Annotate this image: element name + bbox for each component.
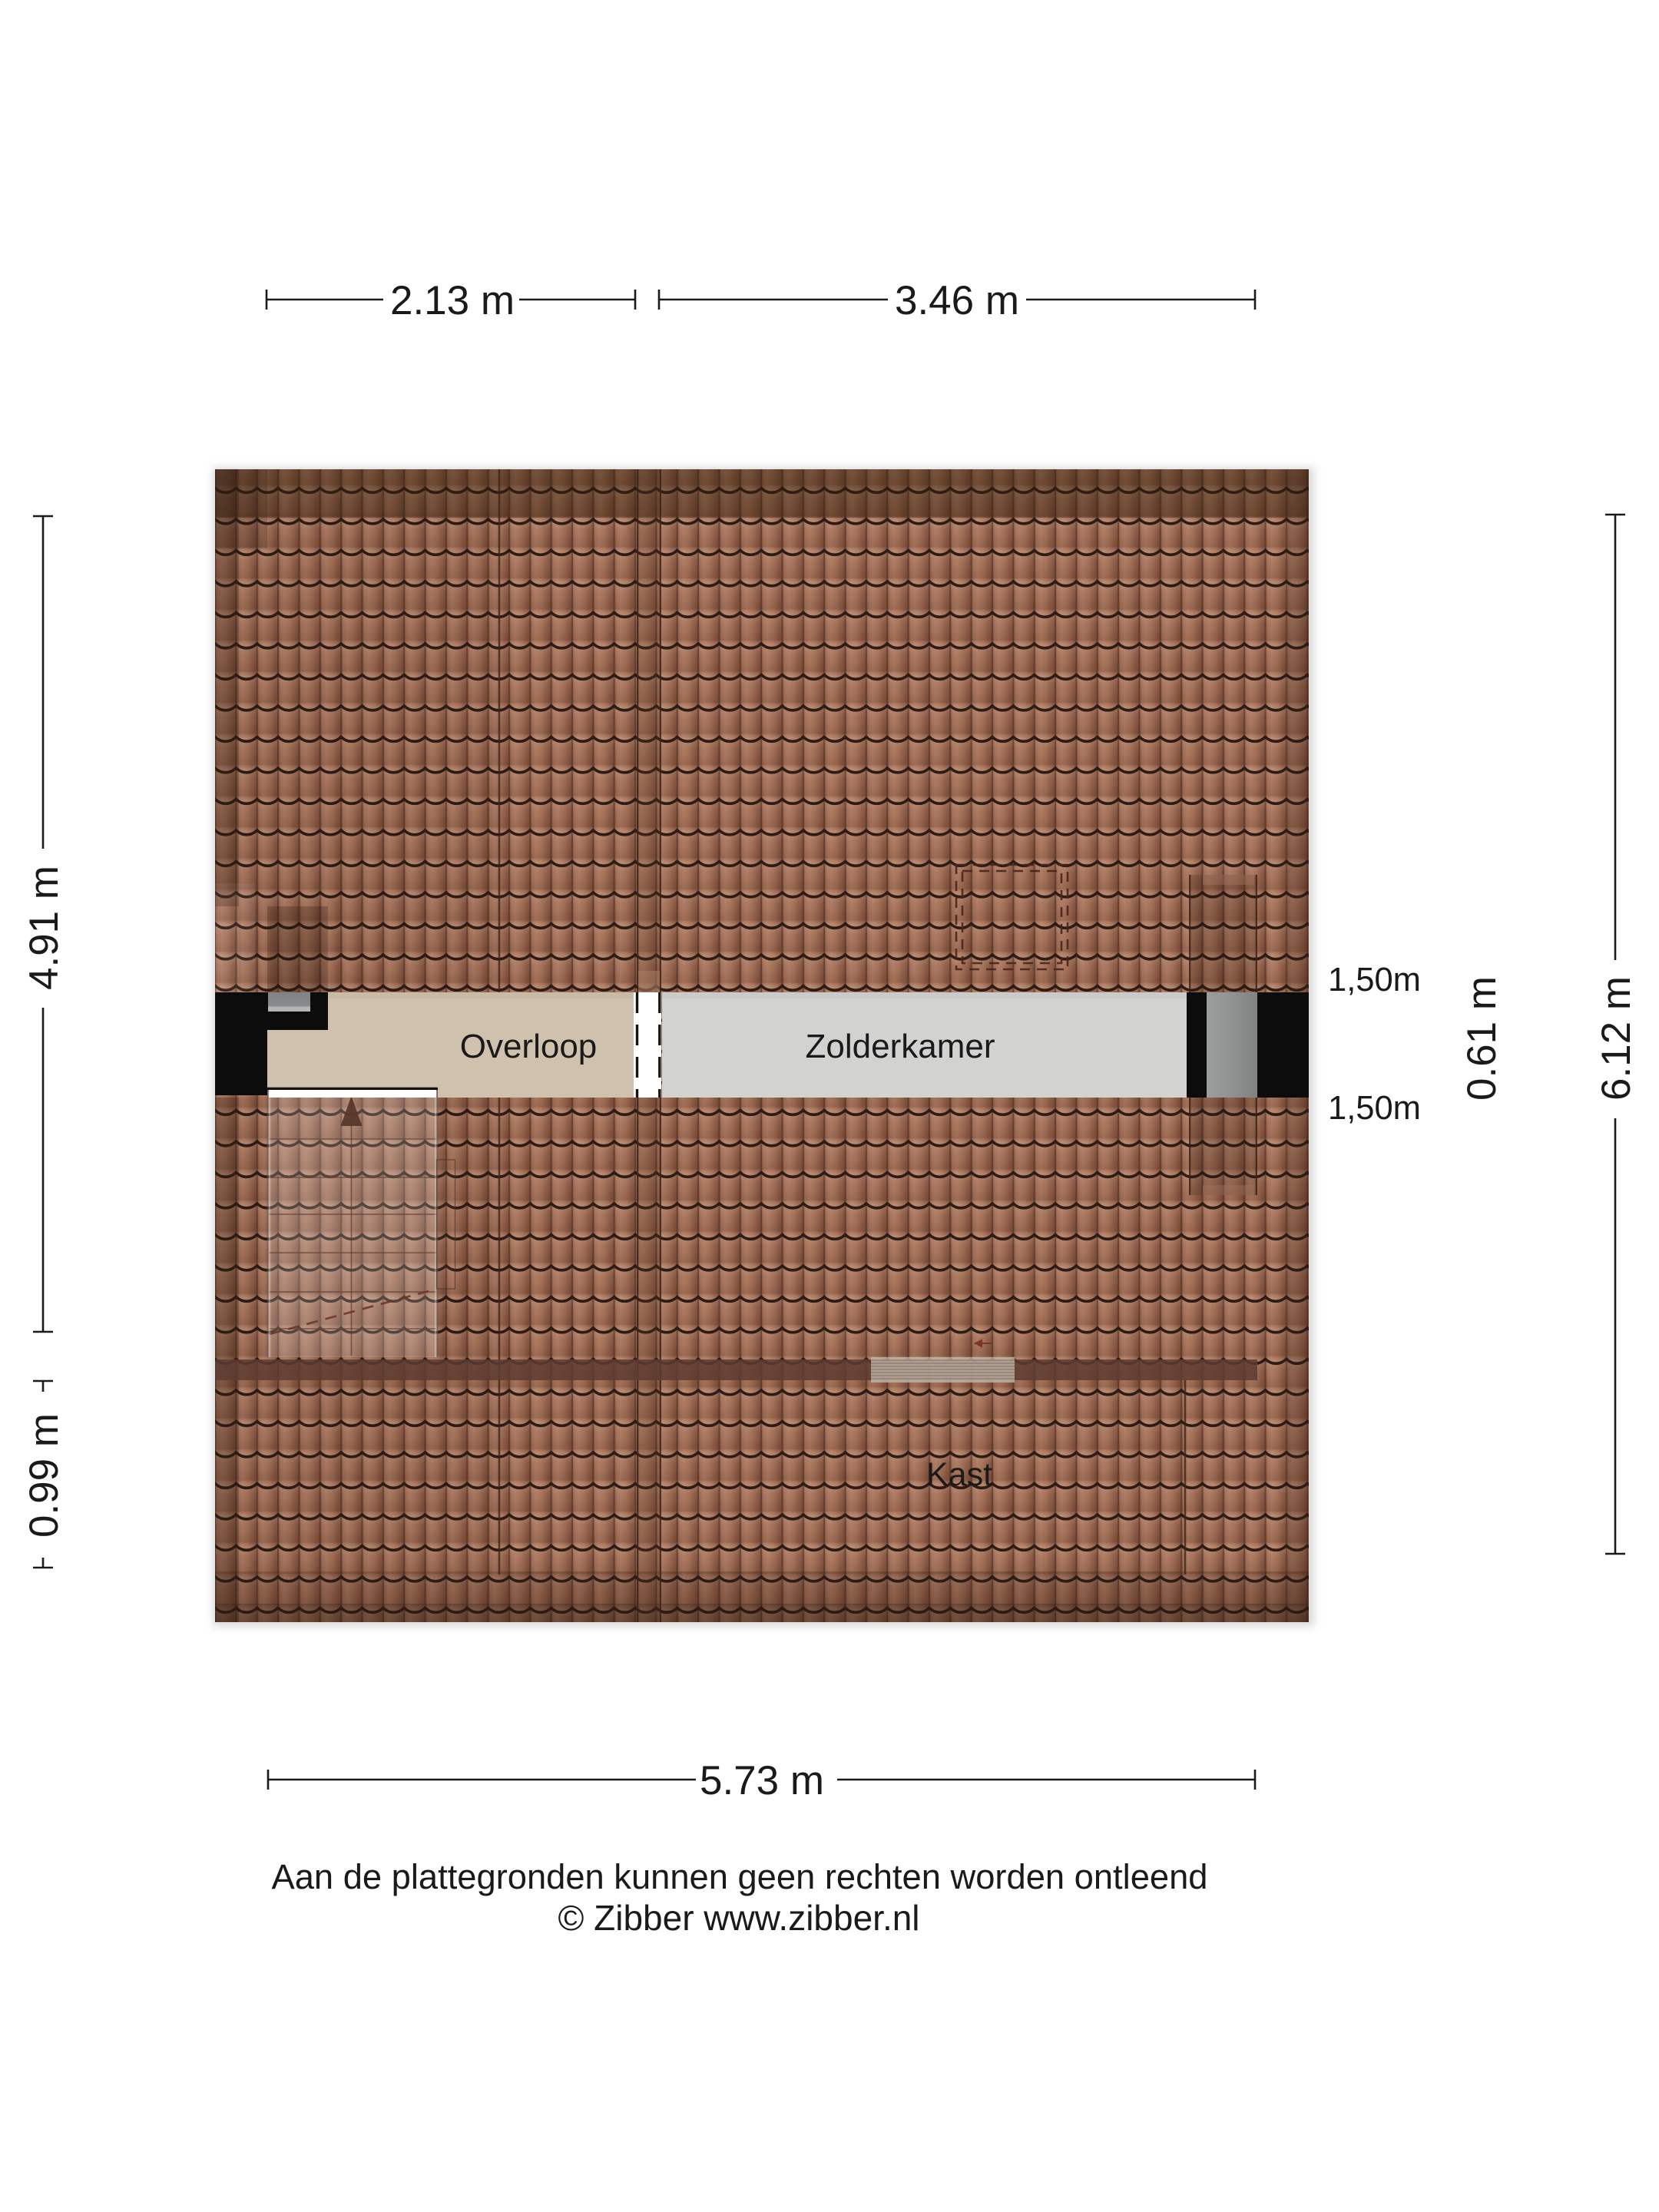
svg-text:1,50m: 1,50m: [1328, 962, 1421, 998]
svg-text:0.61 m: 0.61 m: [1459, 976, 1505, 1101]
svg-text:© Zibber www.zibber.nl: © Zibber www.zibber.nl: [558, 1898, 919, 1938]
svg-text:Kast: Kast: [926, 1456, 992, 1493]
svg-text:6.12 m: 6.12 m: [1594, 976, 1639, 1101]
svg-text:1,50m: 1,50m: [1328, 1090, 1421, 1127]
svg-text:3.46 m: 3.46 m: [895, 278, 1019, 323]
svg-text:4.91 m: 4.91 m: [22, 866, 67, 990]
svg-text:Overloop: Overloop: [460, 1028, 598, 1065]
svg-text:Aan de plattegronden kunnen ge: Aan de plattegronden kunnen geen rechten…: [272, 1857, 1208, 1896]
svg-text:2.13 m: 2.13 m: [390, 278, 515, 323]
svg-text:Zolderkamer: Zolderkamer: [806, 1028, 995, 1065]
svg-text:0.99 m: 0.99 m: [22, 1413, 67, 1538]
svg-text:5.73 m: 5.73 m: [700, 1758, 824, 1803]
